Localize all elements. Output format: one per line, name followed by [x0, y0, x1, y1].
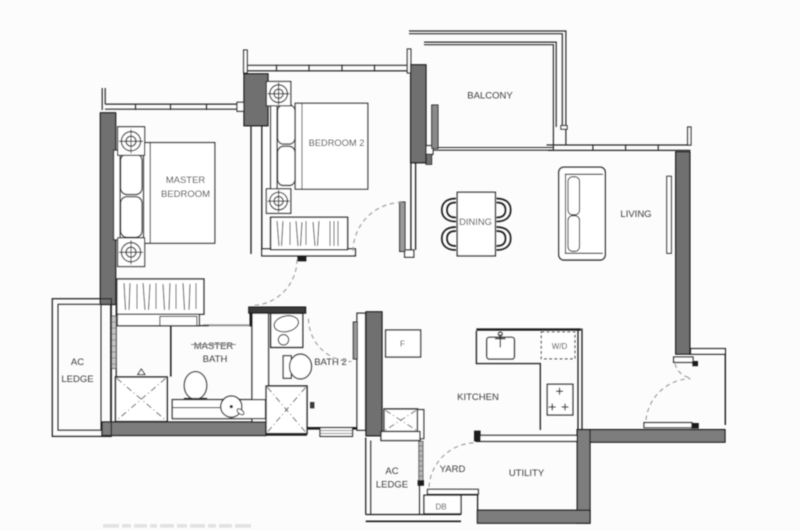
svg-text:KITCHEN: KITCHEN: [457, 392, 499, 403]
svg-text:UTILITY: UTILITY: [509, 468, 545, 479]
svg-text:LIVING: LIVING: [620, 209, 651, 220]
svg-text:BATH: BATH: [203, 354, 228, 365]
svg-text:W/D: W/D: [552, 342, 568, 351]
svg-text:DB: DB: [435, 503, 446, 512]
svg-text:F: F: [400, 340, 405, 349]
svg-text:LEDGE: LEDGE: [376, 480, 408, 491]
svg-text:AC: AC: [71, 357, 84, 368]
svg-text:AC: AC: [385, 466, 398, 477]
svg-text:DINING: DINING: [459, 216, 492, 227]
svg-text:YARD: YARD: [440, 464, 466, 475]
svg-text:LEDGE: LEDGE: [61, 374, 93, 385]
svg-text:BATH 2: BATH 2: [314, 357, 347, 368]
svg-text:BALCONY: BALCONY: [467, 91, 513, 102]
svg-text:MASTER: MASTER: [166, 175, 206, 186]
svg-text:BEDROOM: BEDROOM: [161, 189, 210, 200]
svg-text:MASTER: MASTER: [194, 341, 234, 352]
svg-text:BEDROOM 2: BEDROOM 2: [309, 138, 365, 148]
